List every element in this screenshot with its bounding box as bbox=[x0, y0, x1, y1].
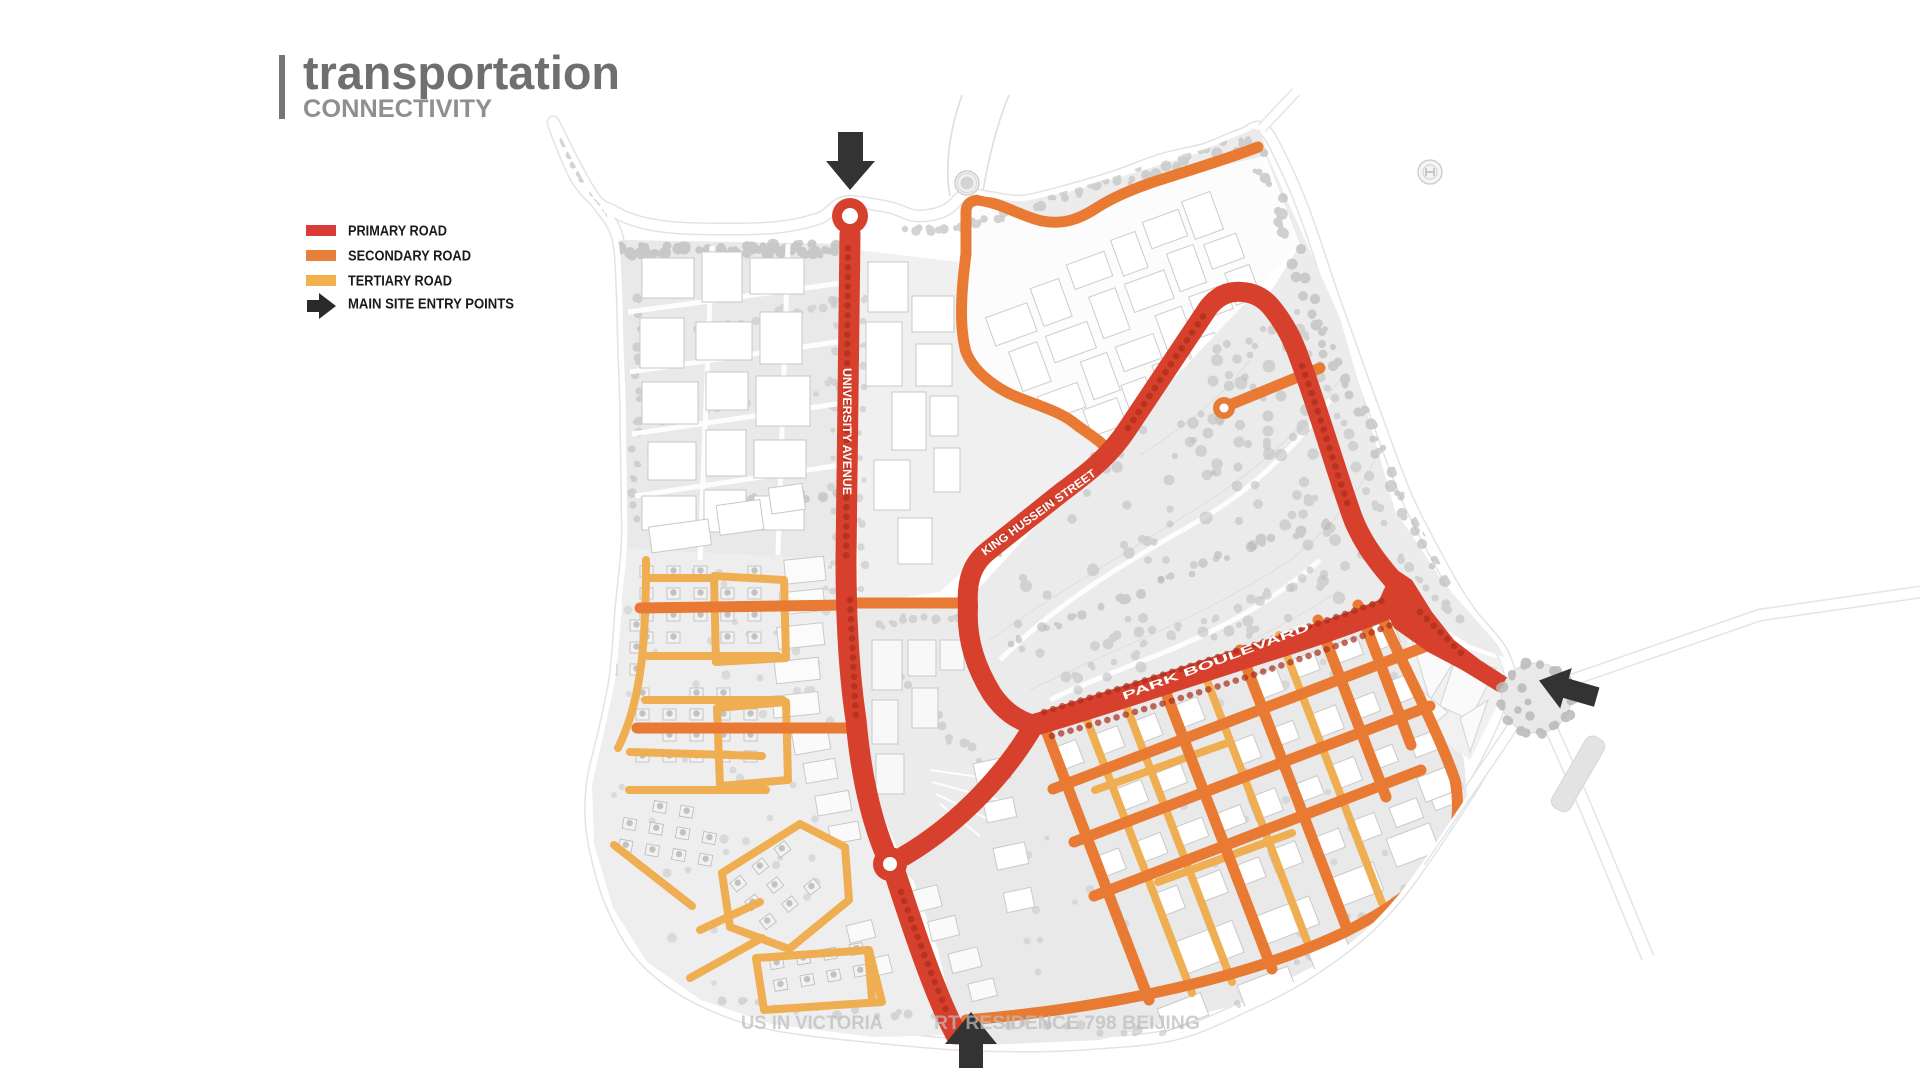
svg-text:MAIN SITE ENTRY POINTS: MAIN SITE ENTRY POINTS bbox=[348, 297, 514, 313]
svg-text:transportation: transportation bbox=[303, 46, 620, 99]
svg-text:CONNECTIVITY: CONNECTIVITY bbox=[303, 95, 492, 123]
svg-text:PRIMARY ROAD: PRIMARY ROAD bbox=[348, 224, 447, 240]
svg-text:SECONDARY ROAD: SECONDARY ROAD bbox=[348, 249, 471, 265]
svg-text:US IN VICTORIA: US IN VICTORIA bbox=[741, 1013, 883, 1034]
svg-text:UNIVERSITY AVENUE: UNIVERSITY AVENUE bbox=[840, 368, 852, 495]
svg-text:RT RESIDENCE 798 BEIJING: RT RESIDENCE 798 BEIJING bbox=[934, 1013, 1200, 1034]
svg-text:TERTIARY ROAD: TERTIARY ROAD bbox=[348, 274, 452, 290]
